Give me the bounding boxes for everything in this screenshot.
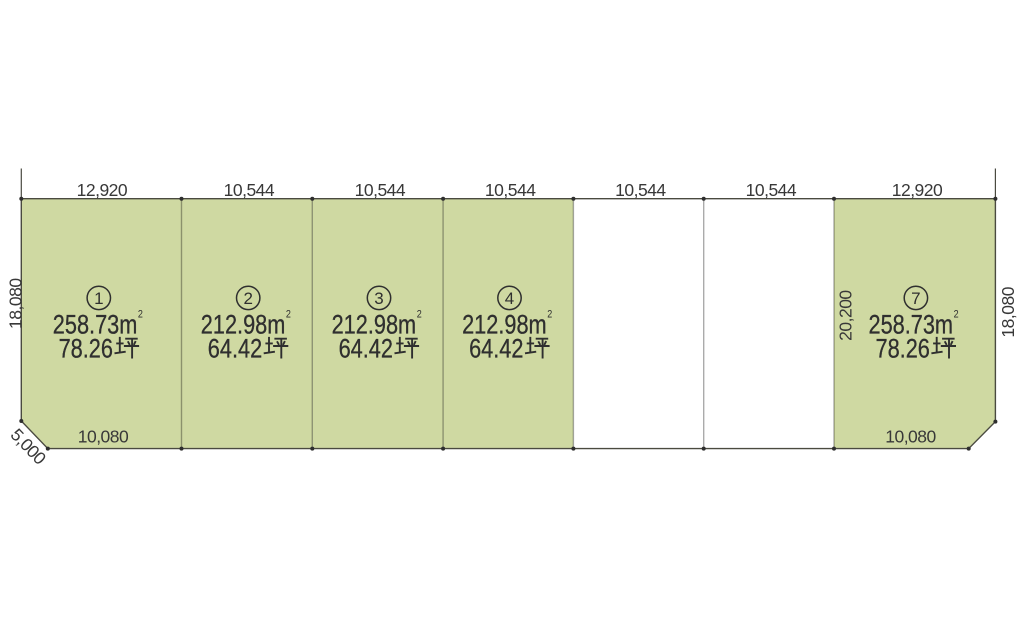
svg-text:10,080: 10,080 [885, 426, 936, 446]
svg-text:10,544: 10,544 [615, 180, 666, 200]
svg-text:10,544: 10,544 [224, 180, 275, 200]
svg-text:2: 2 [243, 289, 252, 308]
svg-text:10,544: 10,544 [746, 180, 797, 200]
svg-text:12,920: 12,920 [892, 180, 943, 200]
svg-text:3: 3 [374, 289, 383, 308]
svg-text:20,200: 20,200 [835, 290, 855, 341]
svg-text:78.26: 78.26 [59, 335, 113, 365]
svg-text:4: 4 [505, 289, 514, 308]
svg-text:2: 2 [547, 309, 552, 321]
svg-text:2: 2 [286, 309, 291, 321]
svg-text:10,080: 10,080 [78, 426, 129, 446]
svg-text:18,080: 18,080 [6, 278, 26, 329]
svg-text:18,080: 18,080 [998, 286, 1018, 337]
svg-text:12,920: 12,920 [77, 180, 128, 200]
svg-text:1: 1 [94, 289, 103, 308]
svg-text:64.42: 64.42 [208, 335, 262, 365]
svg-text:64.42: 64.42 [339, 335, 393, 365]
svg-text:64.42: 64.42 [469, 335, 523, 365]
svg-text:7: 7 [911, 289, 920, 308]
svg-text:2: 2 [954, 309, 959, 321]
svg-text:2: 2 [417, 309, 422, 321]
svg-text:78.26: 78.26 [876, 335, 930, 365]
svg-text:10,544: 10,544 [355, 180, 406, 200]
svg-text:2: 2 [138, 309, 143, 321]
svg-text:10,544: 10,544 [485, 180, 536, 200]
